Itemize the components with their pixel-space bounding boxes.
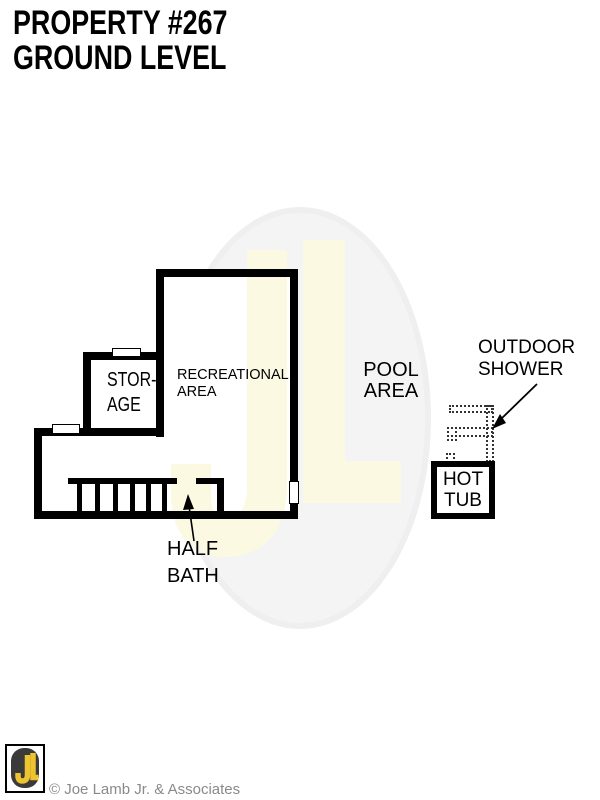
shower-label-line1: OUTDOOR [478, 337, 575, 359]
stair-tread-2 [95, 480, 100, 512]
copyright-text: © Joe Lamb Jr. & Associates [49, 781, 240, 798]
hot-tub-box: HOT TUB [431, 461, 495, 519]
wall-bottom [34, 511, 298, 519]
pool-area-label: POOL AREA [359, 360, 423, 402]
annex-door [52, 424, 80, 434]
stair-tread-5 [146, 480, 151, 512]
title-line2: GROUND LEVEL [13, 41, 227, 76]
company-logo [5, 744, 45, 793]
wall-annex-left [34, 428, 42, 519]
hot-tub-label-line2: TUB [443, 490, 483, 511]
rec-label-line2: AREA [177, 384, 289, 401]
storage-room-label: STOR- AGE [107, 368, 156, 418]
shower-outline-bump [447, 427, 457, 441]
logo-oval [11, 748, 39, 788]
floorplan-page: PROPERTY #267 GROUND LEVEL STOR- AGE REC… [0, 0, 600, 800]
stair-tread-4 [130, 480, 135, 512]
page-title: PROPERTY #267 GROUND LEVEL [13, 6, 227, 76]
wall-storage-left [83, 352, 91, 436]
storage-label-line1: STOR- [107, 368, 156, 393]
stair-tread-3 [113, 480, 118, 512]
wall-halfbath-right [217, 478, 224, 519]
stair-tread-1 [77, 480, 82, 512]
title-line1: PROPERTY #267 [13, 6, 227, 41]
stair-tread-6 [162, 480, 167, 512]
stairs-top-edge [68, 478, 177, 484]
storage-door [112, 348, 141, 357]
halfbath-label-line2: BATH [167, 563, 219, 590]
pool-label-line2: AREA [359, 381, 423, 402]
outdoor-shower-label: OUTDOOR SHOWER [478, 337, 575, 381]
wall-rec-top [156, 269, 298, 277]
half-bath-label: HALF BATH [167, 536, 219, 590]
storage-label-line2: AGE [107, 393, 156, 418]
shower-label-line2: SHOWER [478, 359, 575, 381]
rec-label-line1: RECREATIONAL [177, 367, 289, 384]
rec-right-door [289, 481, 299, 504]
hot-tub-label-line1: HOT [443, 469, 483, 490]
halfbath-label-line1: HALF [167, 536, 219, 563]
logo-letter-l [33, 753, 39, 778]
pool-label-line1: POOL [359, 360, 423, 381]
logo-jl-letters [11, 748, 39, 788]
recreational-area-label: RECREATIONAL AREA [177, 367, 289, 401]
logo-letter-j [18, 755, 28, 781]
